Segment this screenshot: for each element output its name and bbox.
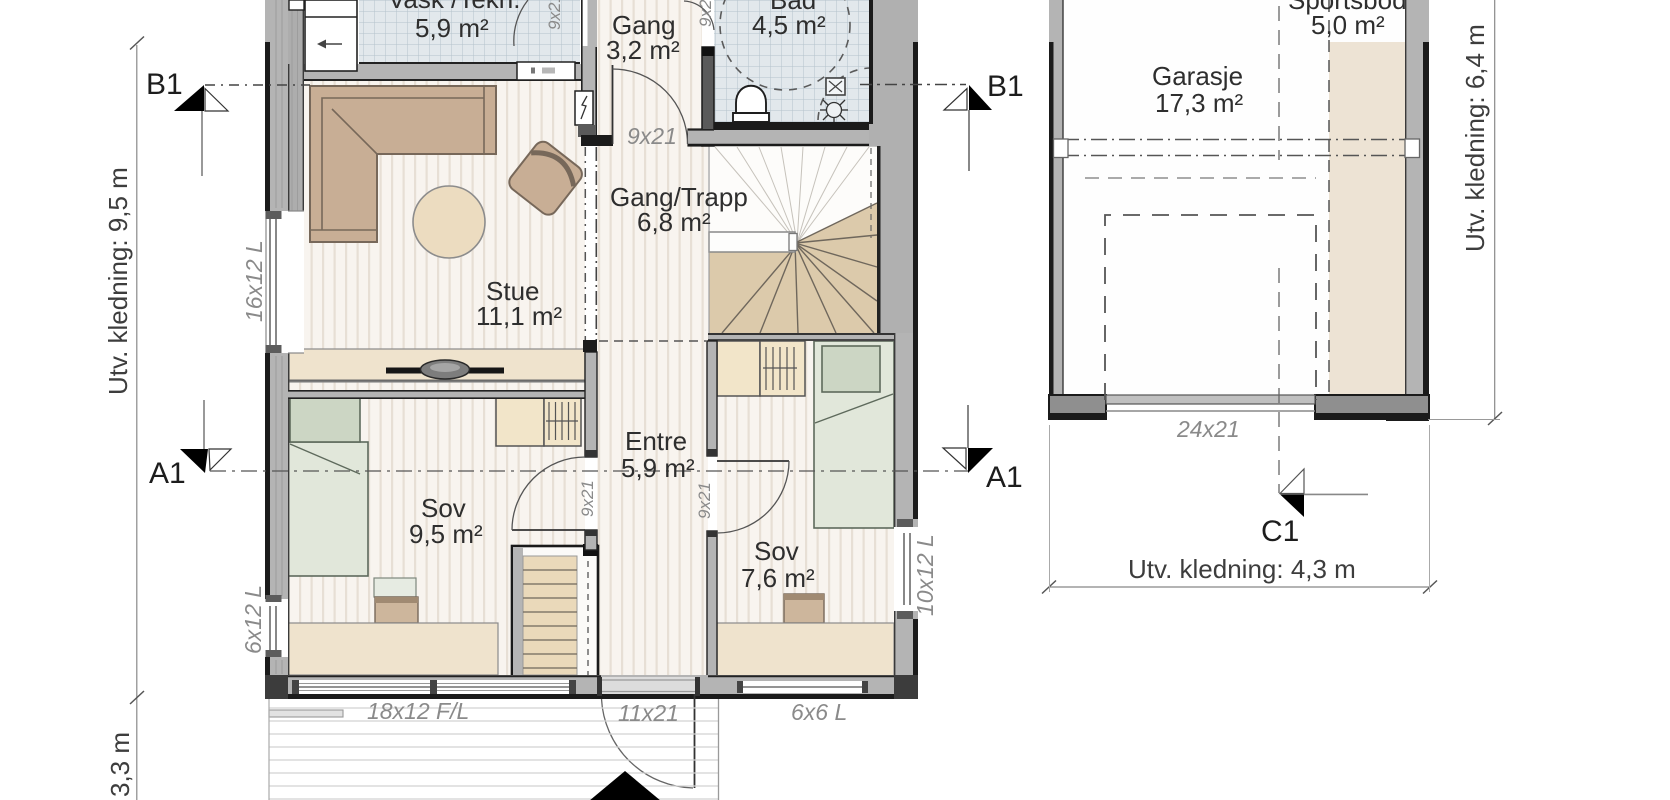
svg-text:5,9 m²: 5,9 m² (621, 453, 695, 483)
svg-text:A1: A1 (149, 457, 186, 490)
svg-text:3,2 m²: 3,2 m² (606, 35, 680, 65)
svg-text:9x21: 9x21 (695, 482, 714, 519)
svg-text:9x21: 9x21 (578, 480, 597, 517)
svg-text:Garasje: Garasje (1152, 61, 1243, 91)
svg-text:A1: A1 (986, 461, 1023, 494)
svg-text:3,3 m: 3,3 m (105, 732, 135, 797)
svg-text:9,5 m²: 9,5 m² (409, 519, 483, 549)
svg-text:Vask /Tekn.: Vask /Tekn. (388, 0, 520, 14)
svg-text:5,9 m²: 5,9 m² (415, 13, 489, 43)
svg-text:18x12 F/L: 18x12 F/L (367, 698, 469, 724)
svg-text:10x12 L: 10x12 L (912, 534, 938, 616)
svg-text:9x21: 9x21 (627, 123, 677, 149)
svg-text:24x21: 24x21 (1176, 416, 1240, 442)
svg-text:17,3 m²: 17,3 m² (1155, 88, 1243, 118)
svg-text:Entre: Entre (625, 426, 687, 456)
svg-text:9x21: 9x21 (545, 0, 564, 30)
svg-text:6x6 L: 6x6 L (791, 699, 847, 725)
svg-text:Utv. kledning: 4,3 m: Utv. kledning: 4,3 m (1128, 554, 1356, 584)
svg-text:7,6 m²: 7,6 m² (741, 563, 815, 593)
svg-text:B1: B1 (146, 68, 183, 101)
svg-text:11,1 m²: 11,1 m² (476, 301, 563, 331)
svg-text:Sov: Sov (754, 536, 799, 566)
svg-text:4,5 m²: 4,5 m² (752, 10, 826, 40)
svg-text:Utv. kledning: 9,5 m: Utv. kledning: 9,5 m (103, 167, 133, 395)
svg-text:6,8 m²: 6,8 m² (637, 207, 711, 237)
svg-text:C1: C1 (1261, 515, 1299, 548)
svg-text:9x21: 9x21 (696, 0, 715, 27)
svg-text:16x12 L: 16x12 L (241, 240, 267, 322)
svg-text:5,0 m²: 5,0 m² (1311, 10, 1385, 40)
svg-text:B1: B1 (987, 70, 1024, 103)
svg-text:Utv. kledning: 6,4 m: Utv. kledning: 6,4 m (1460, 24, 1490, 252)
svg-text:6x12 L: 6x12 L (240, 585, 266, 654)
svg-text:11x21: 11x21 (618, 700, 679, 726)
